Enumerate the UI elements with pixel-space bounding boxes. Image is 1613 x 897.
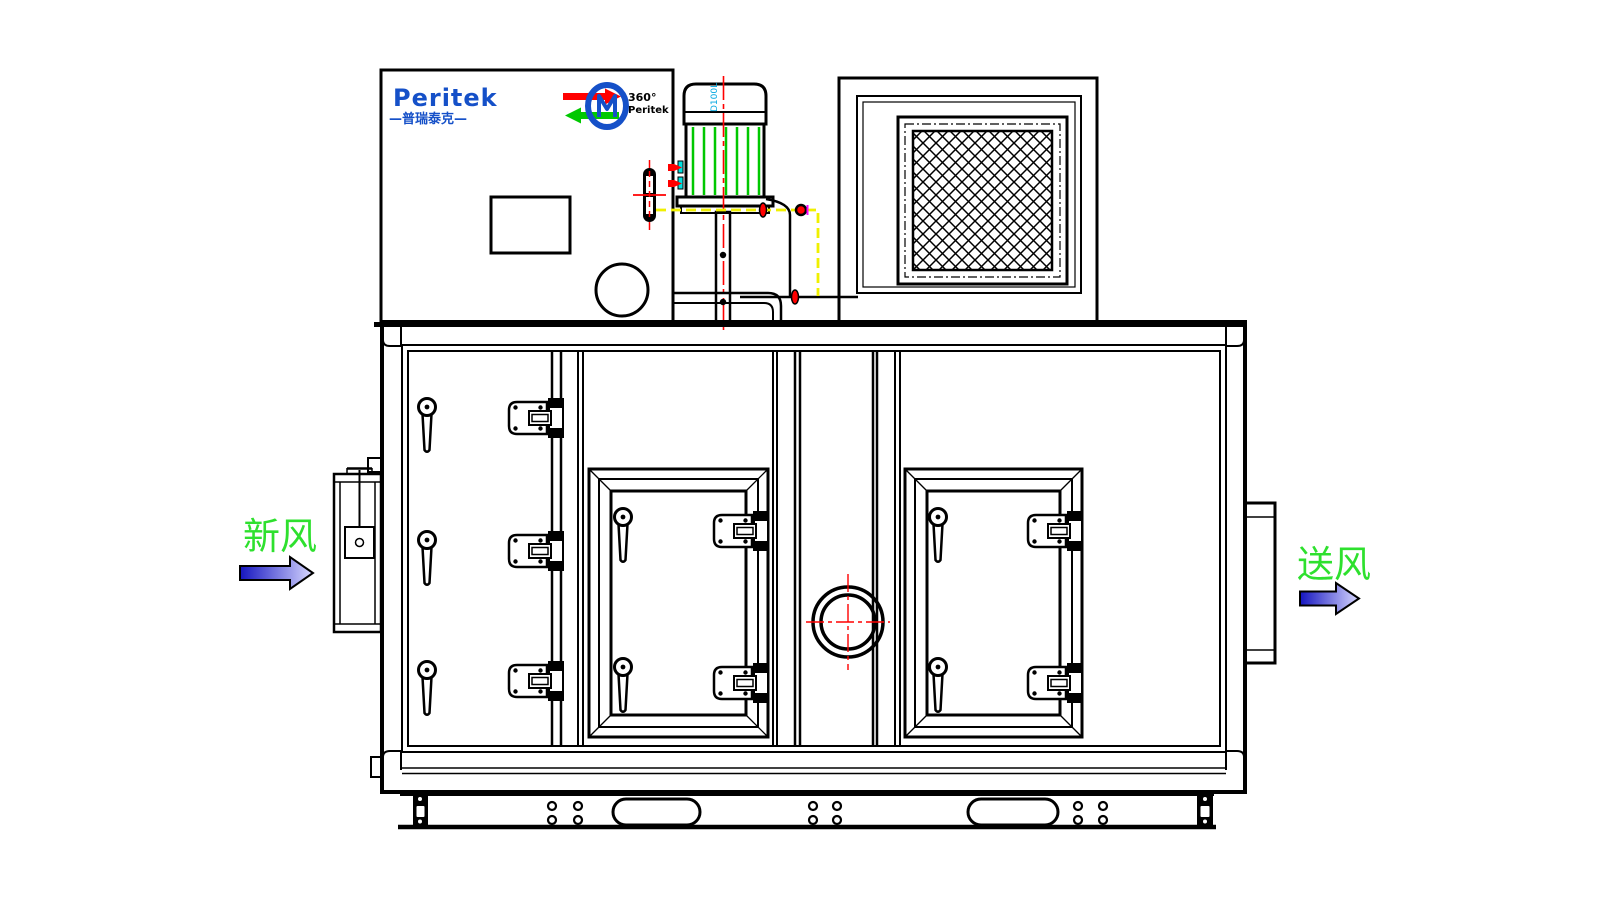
motor-cooling-fins [693,127,759,195]
left-panel-hardware [419,399,564,715]
pipe-fitting [796,205,806,215]
inlet-label: 新风 [243,515,317,558]
forklift-slot [968,799,1058,825]
nameplate [491,197,570,253]
outlet-arrow-icon [1300,583,1359,614]
intake-grille-box [839,78,1097,322]
outlet-label: 送风 [1297,543,1371,586]
drawing-canvas: Peritek —普瑞泰克— 360° Peritek D100L [0,0,1613,897]
corner-gusset [1226,327,1244,346]
inlet-flow: 新风 [240,515,317,589]
door-handle [930,509,947,562]
brand-logo-text: Peritek [393,84,498,112]
outlet-flow: 送风 [1297,543,1371,614]
panel-latch [509,662,563,700]
door-right [905,469,1082,737]
panel-latch [714,664,768,702]
forklift-slot [613,799,700,825]
door-handle [615,659,632,712]
corner-gusset [383,751,401,770]
panel-latch [509,399,563,437]
brand-logo-cn: —普瑞泰克— [389,111,467,127]
panel-latch [714,512,768,550]
door-handle [419,662,436,715]
door-handle [615,509,632,562]
cable-gland [596,264,648,316]
rotor-brand-label: Peritek [628,105,669,116]
dehumidifier-elevation-drawing: Peritek —普瑞泰克— 360° Peritek D100L [0,0,1613,897]
corner-gusset [1226,751,1244,770]
door-handle [419,532,436,585]
inlet-damper [334,468,381,632]
grille-mesh [913,131,1052,270]
motor-stand [673,199,858,322]
base-bracket-left [413,794,428,826]
panel-latch [1028,664,1082,702]
base-bracket-right [1197,794,1213,826]
wall-tab [368,458,382,472]
pipe-fitting [792,290,799,304]
rotor-degree-label: 360° [628,91,656,104]
door-handle [930,659,947,712]
cabinet-frame [368,322,1247,792]
rotor-logo: 360° Peritek [563,85,669,127]
panel-latch [509,532,563,570]
outlet-flange [1245,503,1275,663]
refrigerant-line [656,203,818,304]
pipe-fitting [760,203,767,217]
door-middle [589,469,768,737]
panel-latch [1028,512,1082,550]
damper-actuator-box [345,527,374,558]
motor-frame-mark: D100L [710,83,720,112]
corner-gusset [383,327,401,346]
bolt-holes [548,802,1107,824]
valve-fitting [633,160,666,230]
base-rail [398,794,1216,827]
inlet-arrow-icon [240,557,313,589]
door-handle [419,399,436,452]
